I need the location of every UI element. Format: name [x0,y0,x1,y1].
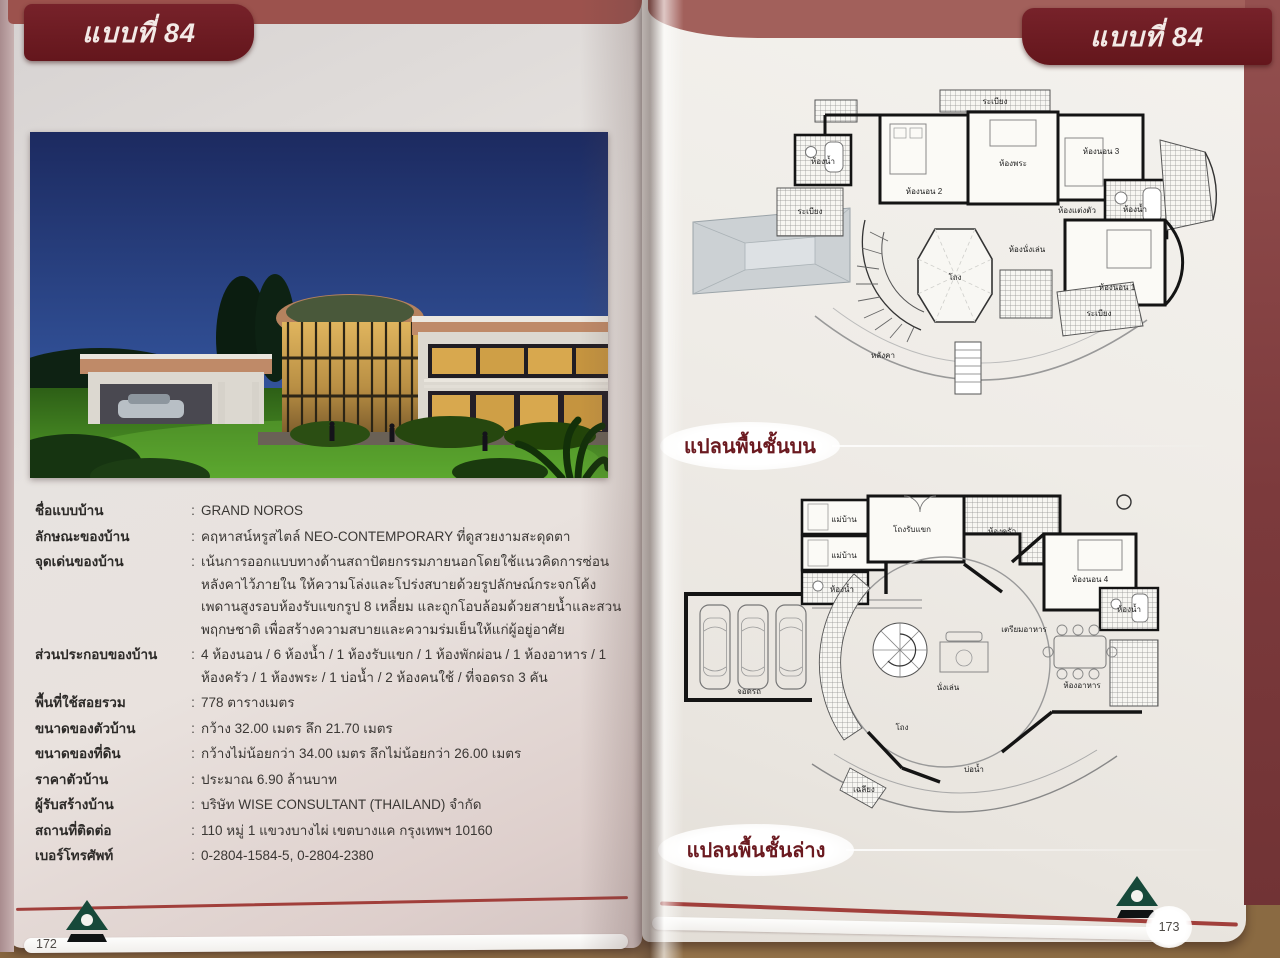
lower-floor-plan: จอดรถ แม่บ้าน แม่บ้าน ห้องน้ำ โถงรับแขก … [672,472,1232,824]
room-label-hall: โถง [948,272,961,282]
left-design-number-tab: แบบที่ 84 [24,4,254,61]
spec-colon: : [185,845,201,868]
spec-row-style: ลักษณะของบ้าน : คฤหาสน์หรูสไตล์ NEO-CONT… [35,526,627,549]
spec-value: 110 หมู่ 1 แขวงบางไผ่ เขตบางแค กรุงเทพฯ … [201,820,627,843]
right-design-number: แบบที่ 84 [1090,15,1204,58]
spec-label: ราคาตัวบ้าน [35,769,185,792]
house-rendering-image [30,132,608,478]
room-label-dining: ห้องอาหาร [1063,681,1101,690]
spec-row-land-size: ขนาดของที่ดิน : กว้างไม่น้อยกว่า 34.00 เ… [35,743,627,766]
room-label-balcony-right: ระเบียง [1087,309,1112,318]
room-label-kitchen: ห้องครัว [988,527,1016,536]
spec-colon: : [185,718,201,741]
spec-value: 0-2804-1584-5, 0-2804-2380 [201,845,627,868]
spec-value: คฤหาสน์หรูสไตล์ NEO-CONTEMPORARY ที่ดูสว… [201,526,627,549]
upper-plan-label-badge: แปลนพื้นชั้นบน [660,422,840,470]
room-label-sitting: ห้องนั่งเล่น [1009,243,1046,254]
room-label-balcony-left: ระเบียง [798,207,823,216]
spec-value: กว้างไม่น้อยกว่า 34.00 เมตร ลึกไม่น้อยกว… [201,743,627,766]
spec-colon: : [185,526,201,549]
spec-row-area: พื้นที่ใช้สอยรวม : 778 ตารางเมตร [35,692,627,715]
room-label-bath-right2: ห้องน้ำ [1117,603,1141,614]
room-label-prayer: ห้องพระ [999,159,1027,168]
spec-colon: : [185,769,201,792]
spec-label: สถานที่ติดต่อ [35,820,185,843]
spec-value: เน้นการออกแบบทางด้านสถาปัตยกรรมภายนอกโดย… [201,551,627,641]
spec-label: จุดเด่นของบ้าน [35,551,185,641]
spec-row-name: ชื่อแบบบ้าน : GRAND NOROS [35,500,627,523]
room-label-pantry: เตรียมอาหาร [1001,625,1047,634]
room-label-dressing: ห้องแต่งตัว [1058,206,1096,215]
spec-label: ขนาดของตัวบ้าน [35,718,185,741]
spec-row-builder: ผู้รับสร้างบ้าน : บริษัท WISE CONSULTANT… [35,794,627,817]
lower-plan-label-badge: แปลนพื้นชั้นล่าง [658,824,854,876]
room-label-reception: โถงรับแขก [893,524,931,534]
right-page-number-badge: 173 [1146,906,1192,948]
spec-label: ชื่อแบบบ้าน [35,500,185,523]
room-label-hall-lower: โถง [895,722,908,732]
room-label-parking: จอดรถ [737,687,761,696]
room-label-bath-left: ห้องน้ำ [811,155,835,166]
room-label-balcony-top: ระเบียง [983,97,1008,106]
spec-value: 4 ห้องนอน / 6 ห้องน้ำ / 1 ห้องรับแขก / 1… [201,644,627,689]
spec-label: ส่วนประกอบของบ้าน [35,644,185,689]
room-label-pond: บ่อน้ำ [964,763,984,774]
room-label-bedroom4: ห้องนอน 4 [1072,575,1109,584]
spec-colon: : [185,820,201,843]
book-left-edge [0,0,14,952]
spec-colon: : [185,794,201,817]
spec-colon: : [185,743,201,766]
upper-plan-divider-line [832,445,1222,447]
spec-value: GRAND NOROS [201,500,627,523]
room-label-bedroom2: ห้องนอน 2 [906,187,943,196]
spec-label: ผู้รับสร้างบ้าน [35,794,185,817]
spec-colon: : [185,644,201,689]
house-rendering-photo [30,132,608,478]
room-label-roof: หลังคา [871,351,895,360]
spec-row-address: สถานที่ติดต่อ : 110 หมู่ 1 แขวงบางไผ่ เข… [35,820,627,843]
spec-colon: : [185,500,201,523]
spec-label: พื้นที่ใช้สอยรวม [35,692,185,715]
lower-plan-label: แปลนพื้นชั้นล่าง [687,834,826,866]
left-design-number: แบบที่ 84 [82,11,196,54]
publisher-triangle-logo-icon [62,898,112,944]
room-label-sitting-lower: นั่งเล่น [937,681,960,692]
spec-label: เบอร์โทรศัพท์ [35,845,185,868]
spec-colon: : [185,692,201,715]
spec-value: กว้าง 32.00 เมตร ลึก 21.70 เมตร [201,718,627,741]
book-cover-edge [1244,0,1280,905]
spec-row-phone: เบอร์โทรศัพท์ : 0-2804-1584-5, 0-2804-23… [35,845,627,868]
room-label-maid-bath: ห้องน้ำ [830,583,854,594]
room-label-bath-right: ห้องน้ำ [1123,203,1147,214]
spec-colon: : [185,551,201,641]
room-label-terrace: เฉลียง [853,785,875,794]
room-label-bedroom1: ห้องนอน 1 [1099,283,1136,292]
upper-plan-label: แปลนพื้นชั้นบน [684,430,816,462]
room-label-maid1: แม่บ้าน [831,515,857,524]
spec-row-components: ส่วนประกอบของบ้าน : 4 ห้องนอน / 6 ห้องน้… [35,644,627,689]
room-label-maid2: แม่บ้าน [831,551,857,560]
spec-value: ประมาณ 6.90 ล้านบาท [201,769,627,792]
spec-value: 778 ตารางเมตร [201,692,627,715]
room-label-bedroom3: ห้องนอน 3 [1083,147,1120,156]
spec-value: บริษัท WISE CONSULTANT (THAILAND) จำกัด [201,794,627,817]
spec-row-price: ราคาตัวบ้าน : ประมาณ 6.90 ล้านบาท [35,769,627,792]
spec-row-house-size: ขนาดของตัวบ้าน : กว้าง 32.00 เมตร ลึก 21… [35,718,627,741]
right-design-number-tab: แบบที่ 84 [1022,8,1272,65]
right-page-number: 173 [1159,920,1180,934]
spec-row-highlight: จุดเด่นของบ้าน : เน้นการออกแบบทางด้านสถา… [35,551,627,641]
house-spec-list: ชื่อแบบบ้าน : GRAND NOROS ลักษณะของบ้าน … [35,500,627,871]
lower-plan-divider-line [846,849,1226,851]
upper-floor-plan: ระเบียง ห้องนอน 2 ห้องพระ ห้องนอน 3 ห้อง… [665,80,1225,425]
spec-label: ขนาดของที่ดิน [35,743,185,766]
left-footer-swoosh [24,934,628,953]
spec-label: ลักษณะของบ้าน [35,526,185,549]
left-page-number: 172 [36,937,57,951]
